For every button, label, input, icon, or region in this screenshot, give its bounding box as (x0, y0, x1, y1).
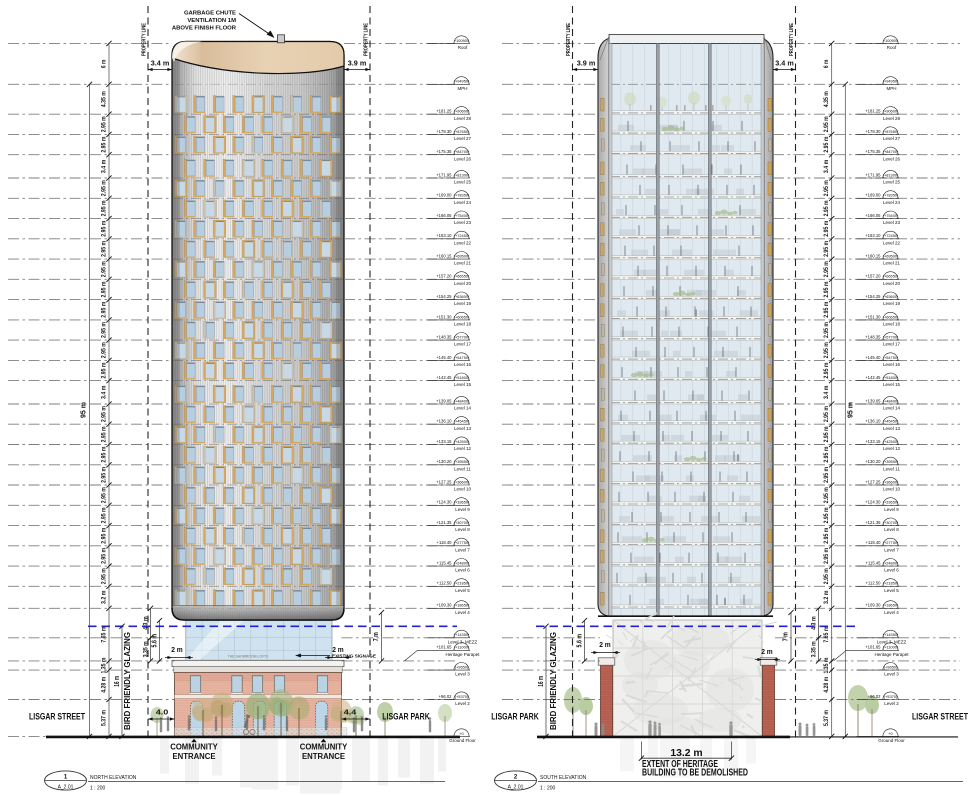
svg-text:2.95 m: 2.95 m (824, 241, 830, 257)
svg-text:+154.25: +154.25 (436, 294, 452, 299)
svg-text:2.95 m: 2.95 m (101, 221, 107, 237)
svg-text:(+27750): (+27750) (883, 540, 899, 545)
svg-text:(+14350): (+14350) (454, 632, 470, 637)
svg-text:(+66550): (+66550) (454, 274, 470, 279)
svg-text:Level 21: Level 21 (454, 261, 472, 266)
svg-text:+133.15: +133.15 (865, 439, 881, 444)
svg-text:13.2 m: 13.2 m (670, 748, 702, 759)
svg-text:Level 27: Level 27 (454, 136, 472, 141)
svg-text:2.95 m: 2.95 m (101, 200, 107, 216)
svg-text:Level 22: Level 22 (454, 240, 472, 245)
svg-text:+171.95: +171.95 (436, 172, 452, 177)
svg-text:Level 20: Level 20 (454, 281, 472, 286)
svg-text:(+72450): (+72450) (454, 233, 470, 238)
svg-text:2.95 m: 2.95 m (101, 137, 107, 153)
svg-text:Level 13: Level 13 (454, 426, 472, 431)
svg-text:4.35 m: 4.35 m (824, 91, 830, 107)
svg-text:+151.30: +151.30 (436, 314, 452, 319)
svg-text:Level 15: Level 15 (883, 382, 901, 387)
svg-text:+181.25: +181.25 (865, 109, 881, 114)
svg-text:7 m: 7 m (783, 632, 790, 641)
svg-text:3.4 m: 3.4 m (151, 59, 170, 68)
svg-text:LISGAR PARK: LISGAR PARK (491, 711, 539, 721)
svg-text:(+57700): (+57700) (454, 335, 470, 340)
svg-text:Level 5: Level 5 (455, 588, 470, 593)
svg-text:+124.30: +124.30 (436, 500, 452, 505)
svg-text:2.95 m: 2.95 m (824, 528, 830, 544)
svg-text:+127.25: +127.25 (865, 479, 881, 484)
svg-text:PROPERTY LINE: PROPERTY LINE (566, 23, 572, 56)
svg-text:+109.30: +109.30 (865, 603, 881, 608)
svg-text:A_2.01: A_2.01 (508, 785, 524, 791)
svg-text:+100900: +100900 (454, 38, 470, 43)
svg-text:Level 9: Level 9 (884, 507, 899, 512)
svg-text:Level 27: Level 27 (883, 136, 901, 141)
svg-text:Level 15: Level 15 (454, 382, 472, 387)
svg-text:2.95 m: 2.95 m (101, 447, 107, 463)
svg-text:Roof: Roof (887, 45, 897, 50)
svg-text:(+84700): (+84700) (883, 149, 899, 154)
svg-text:3.4 m: 3.4 m (824, 160, 830, 174)
svg-text:MPH: MPH (458, 86, 468, 91)
svg-text:(+51800): (+51800) (883, 375, 899, 380)
svg-text:3.4 m: 3.4 m (101, 160, 107, 174)
svg-text:+121.35: +121.35 (865, 520, 881, 525)
svg-text:(+54750): (+54750) (883, 355, 899, 360)
svg-text:Level 28: Level 28 (454, 116, 472, 121)
svg-text:(+57700): (+57700) (883, 335, 899, 340)
svg-text:2.95 m: 2.95 m (101, 568, 107, 584)
svg-text:+175.35: +175.35 (436, 149, 452, 154)
svg-text:(+94950): (+94950) (454, 79, 470, 84)
svg-text:BUILDING TO BE DEMOLISHED: BUILDING TO BE DEMOLISHED (642, 768, 748, 779)
svg-text:Level 9: Level 9 (455, 507, 470, 512)
svg-text:2 m: 2 m (171, 645, 183, 654)
svg-text:Level 18: Level 18 (454, 322, 472, 327)
svg-text:ABOVE FINISH FLOOR: ABOVE FINISH FLOOR (172, 26, 237, 32)
svg-text:Level 25: Level 25 (883, 180, 901, 185)
svg-text:+169.00: +169.00 (865, 193, 881, 198)
svg-text:(+18650): (+18650) (883, 603, 899, 608)
svg-text:LISGAR STREET: LISGAR STREET (912, 711, 968, 721)
svg-text:2.95 m: 2.95 m (101, 322, 107, 338)
svg-text:2.95 m: 2.95 m (824, 467, 830, 483)
svg-text:GARBAGE CHUTE: GARBAGE CHUTE (184, 11, 236, 17)
svg-text:(+42500): (+42500) (454, 439, 470, 444)
svg-text:Level 5: Level 5 (884, 588, 899, 593)
svg-text:(+39550): (+39550) (883, 459, 899, 464)
svg-text:VENTILATION 1M: VENTILATION 1M (187, 18, 236, 24)
svg-text:(+9650): (+9650) (884, 665, 898, 670)
svg-text:COMMUNITY: COMMUNITY (170, 743, 218, 752)
svg-text:2.95 m: 2.95 m (824, 261, 830, 277)
svg-text:2.95 m: 2.95 m (824, 548, 830, 564)
svg-text:2.95 m: 2.95 m (824, 406, 830, 422)
svg-text:(+9650): (+9650) (455, 665, 469, 670)
svg-text:(+87650): (+87650) (454, 129, 470, 134)
svg-text:6 m: 6 m (101, 60, 107, 69)
svg-text:LISGAR PARK: LISGAR PARK (382, 711, 430, 721)
svg-text:(+45450): (+45450) (454, 419, 470, 424)
svg-text:(+94950): (+94950) (883, 79, 899, 84)
svg-text:3.2 m: 3.2 m (101, 591, 107, 605)
svg-text:+181.25: +181.25 (436, 109, 452, 114)
svg-text:+96.02: +96.02 (439, 694, 453, 699)
svg-text:BIRD FRIENDLY GLAZING: BIRD FRIENDLY GLAZING (123, 632, 132, 730)
svg-text:Level 11: Level 11 (454, 466, 471, 471)
svg-text:2.95 m: 2.95 m (824, 363, 830, 379)
svg-text:(+75400): (+75400) (454, 213, 470, 218)
svg-text:(+78350): (+78350) (883, 193, 899, 198)
svg-text:Roof: Roof (458, 45, 468, 50)
svg-text:95 m: 95 m (845, 402, 854, 418)
svg-text:Level 3- MEZZ: Level 3- MEZZ (448, 639, 478, 644)
svg-text:ENTRANCE: ENTRANCE (173, 752, 216, 761)
svg-text:4.4: 4.4 (344, 708, 357, 717)
svg-text:Level 7: Level 7 (455, 547, 470, 552)
svg-text:2.95 m: 2.95 m (824, 507, 830, 523)
svg-text:+136.10: +136.10 (436, 419, 452, 424)
svg-text:2.95 m: 2.95 m (824, 487, 830, 503)
svg-text:MPH: MPH (887, 86, 897, 91)
svg-text:THE SHOWROOM LOFTS: THE SHOWROOM LOFTS (228, 655, 269, 659)
svg-text:COMMUNITY: COMMUNITY (300, 743, 348, 752)
svg-text:(+11000): (+11000) (883, 645, 899, 650)
svg-text:+130.20: +130.20 (865, 459, 881, 464)
svg-text:(+78350): (+78350) (454, 193, 470, 198)
svg-text:Ground Floor: Ground Floor (878, 738, 905, 743)
svg-text:+148.35: +148.35 (865, 335, 881, 340)
svg-text:NORTH ELEVATION: NORTH ELEVATION (90, 775, 137, 781)
svg-text:+115.45: +115.45 (866, 561, 882, 566)
svg-text:4.28 m: 4.28 m (101, 677, 107, 693)
svg-text:+178.30: +178.30 (436, 129, 452, 134)
svg-text:2.95 m: 2.95 m (824, 282, 830, 298)
svg-text:Level 12: Level 12 (883, 446, 901, 451)
svg-text:Level 2: Level 2 (884, 701, 899, 706)
svg-text:Level 18: Level 18 (883, 322, 901, 327)
svg-text:+118.40: +118.40 (437, 540, 453, 545)
svg-text:+124.30: +124.30 (865, 500, 881, 505)
svg-text:3.35 m: 3.35 m (142, 641, 149, 657)
svg-text:(+36600): (+36600) (454, 479, 470, 484)
svg-text:2.95 m: 2.95 m (824, 221, 830, 237)
svg-text:2.95 m: 2.95 m (824, 447, 830, 463)
svg-text:+175.35: +175.35 (865, 149, 881, 154)
svg-text:Level 14: Level 14 (883, 406, 901, 411)
svg-text:7 m: 7 m (373, 632, 380, 641)
svg-text:16 m: 16 m (538, 676, 545, 687)
svg-text:2.95 m: 2.95 m (101, 467, 107, 483)
svg-text:Level 19: Level 19 (883, 301, 901, 306)
svg-text:(+18650): (+18650) (454, 603, 470, 608)
svg-text:+145.40: +145.40 (865, 355, 881, 360)
svg-text:+171.95: +171.95 (865, 172, 881, 177)
svg-text:+121.35: +121.35 (436, 520, 452, 525)
svg-text:4.3 m: 4.3 m (810, 616, 817, 630)
svg-text:Level 24: Level 24 (883, 200, 901, 205)
svg-text:3.35 m: 3.35 m (810, 641, 817, 657)
svg-text:Level 2: Level 2 (455, 701, 470, 706)
svg-text:SOUTH ELEVATION: SOUTH ELEVATION (540, 775, 587, 781)
svg-text:1 : 200: 1 : 200 (90, 786, 106, 792)
svg-text:2.95 m: 2.95 m (101, 261, 107, 277)
svg-text:(+24800): (+24800) (883, 561, 899, 566)
svg-text:2.95 m: 2.95 m (101, 180, 107, 196)
svg-text:5.37 m: 5.37 m (824, 710, 830, 726)
svg-text:ENTRANCE: ENTRANCE (302, 752, 345, 761)
svg-text:EXISTING SIGNAGE: EXISTING SIGNAGE (332, 654, 376, 659)
svg-text:2.95 m: 2.95 m (101, 548, 107, 564)
svg-text:(+14350): (+14350) (883, 632, 899, 637)
svg-text:(+33650): (+33650) (883, 500, 899, 505)
svg-text:Level 24: Level 24 (454, 200, 472, 205)
svg-text:PROPERTY LINE: PROPERTY LINE (364, 23, 370, 56)
svg-text:(+24800): (+24800) (454, 561, 470, 566)
svg-text:PROPERTY LINE: PROPERTY LINE (142, 23, 148, 56)
svg-text:Level 16: Level 16 (883, 362, 901, 367)
svg-text:2.95 m: 2.95 m (101, 342, 107, 358)
svg-text:3.9 m: 3.9 m (577, 59, 596, 68)
svg-text:Level 3: Level 3 (455, 672, 470, 677)
svg-text:Level 17: Level 17 (883, 342, 901, 347)
svg-text:+157.20: +157.20 (436, 274, 452, 279)
svg-text:+151.30: +151.30 (865, 314, 881, 319)
svg-text:+100900: +100900 (883, 38, 899, 43)
svg-text:1.35 m: 1.35 m (101, 658, 107, 674)
svg-text:Level 16: Level 16 (454, 362, 472, 367)
svg-text:Heritage Parapet: Heritage Parapet (874, 652, 909, 657)
svg-text:Level 25: Level 25 (454, 180, 472, 185)
svg-text:(+48400): (+48400) (454, 398, 470, 403)
svg-text:+112.50: +112.50 (437, 581, 453, 586)
svg-text:(+72450): (+72450) (883, 233, 899, 238)
svg-text:Level 4: Level 4 (884, 610, 899, 615)
svg-text:(+39550): (+39550) (454, 459, 470, 464)
svg-text:2 m: 2 m (761, 647, 773, 656)
svg-text:(+60650): (+60650) (883, 314, 899, 319)
svg-text:+163.10: +163.10 (865, 233, 881, 238)
svg-text:(+21850): (+21850) (454, 581, 470, 586)
svg-text:+166.05: +166.05 (865, 213, 881, 218)
svg-text:(+5370): (+5370) (884, 694, 898, 699)
svg-text:Level 7: Level 7 (884, 547, 899, 552)
svg-text:(+27750): (+27750) (454, 540, 470, 545)
svg-text:Level 11: Level 11 (883, 466, 900, 471)
svg-text:(+11000): (+11000) (454, 645, 470, 650)
svg-text:+130.20: +130.20 (436, 459, 452, 464)
svg-text:3.2 m: 3.2 m (824, 591, 830, 605)
svg-text:4.35 m: 4.35 m (101, 91, 107, 107)
svg-text:+169.00: +169.00 (436, 193, 452, 198)
svg-text:(+90600): (+90600) (883, 109, 899, 114)
svg-text:+166.05: +166.05 (436, 213, 452, 218)
svg-text:(+51800): (+51800) (454, 375, 470, 380)
svg-text:+142.45: +142.45 (865, 375, 881, 380)
svg-text:+163.10: +163.10 (436, 233, 452, 238)
svg-text:(+69500): (+69500) (454, 254, 470, 259)
svg-text:(+42500): (+42500) (883, 439, 899, 444)
svg-text:2.95 m: 2.95 m (101, 116, 107, 132)
svg-text:+101.65: +101.65 (436, 645, 452, 650)
svg-text:+154.25: +154.25 (865, 294, 881, 299)
svg-text:(+81300): (+81300) (883, 172, 899, 177)
svg-text:(+81300): (+81300) (454, 172, 470, 177)
svg-text:2.95 m: 2.95 m (101, 241, 107, 257)
svg-text:+160.15: +160.15 (436, 254, 452, 259)
svg-text:(+30700): (+30700) (883, 520, 899, 525)
svg-text:2.95 m: 2.95 m (101, 282, 107, 298)
svg-text:4.0: 4.0 (156, 708, 169, 717)
svg-text:4.3 m: 4.3 m (142, 616, 149, 630)
svg-text:LISGAR STREET: LISGAR STREET (29, 711, 85, 721)
svg-text:3.4 m: 3.4 m (824, 386, 830, 400)
svg-text:2.95 m: 2.95 m (824, 137, 830, 153)
svg-text:+136.10: +136.10 (865, 419, 881, 424)
svg-text:2.95 m: 2.95 m (824, 568, 830, 584)
svg-text:2.95 m: 2.95 m (824, 116, 830, 132)
svg-text:1.35 m: 1.35 m (824, 658, 830, 674)
svg-text:+118.40: +118.40 (866, 540, 882, 545)
svg-text:2.95 m: 2.95 m (101, 487, 107, 503)
svg-text:(+84700): (+84700) (454, 149, 470, 154)
svg-text:(+45450): (+45450) (883, 419, 899, 424)
svg-text:Level 20: Level 20 (883, 281, 901, 286)
svg-text:2.95 m: 2.95 m (101, 426, 107, 442)
svg-text:7.65 m: 7.65 m (101, 627, 107, 643)
svg-text:5.6 m: 5.6 m (151, 634, 158, 648)
svg-text:3.4 m: 3.4 m (101, 386, 107, 400)
svg-text:+109.30: +109.30 (436, 603, 452, 608)
svg-text:Level 28: Level 28 (883, 116, 901, 121)
svg-text:2.95 m: 2.95 m (824, 322, 830, 338)
svg-text:(+66550): (+66550) (883, 274, 899, 279)
svg-text:+127.25: +127.25 (436, 479, 452, 484)
svg-text:2.95 m: 2.95 m (824, 302, 830, 318)
svg-text:Level 6: Level 6 (884, 568, 899, 573)
svg-text:Level 10: Level 10 (454, 487, 472, 492)
svg-text:Level 17: Level 17 (454, 342, 472, 347)
svg-text:Level 10: Level 10 (883, 487, 901, 492)
svg-text:4.28 m: 4.28 m (824, 677, 830, 693)
svg-text:Level 8: Level 8 (884, 527, 899, 532)
svg-text:Level 3: Level 3 (884, 672, 899, 677)
svg-text:2.95 m: 2.95 m (101, 528, 107, 544)
svg-text:2.95 m: 2.95 m (101, 363, 107, 379)
svg-text:+145.40: +145.40 (436, 355, 452, 360)
svg-text:(+54750): (+54750) (454, 355, 470, 360)
svg-text:+139.05: +139.05 (436, 398, 452, 403)
svg-text:Level 23: Level 23 (883, 220, 901, 225)
svg-text:Level 26: Level 26 (454, 156, 472, 161)
svg-text:+133.15: +133.15 (436, 439, 452, 444)
svg-text:3.4 m: 3.4 m (775, 59, 794, 68)
svg-text:+115.45: +115.45 (437, 561, 453, 566)
svg-text:Level 26: Level 26 (883, 156, 901, 161)
svg-text:Level 4: Level 4 (455, 610, 470, 615)
svg-text:95 m: 95 m (79, 402, 88, 418)
svg-text:(+69500): (+69500) (883, 254, 899, 259)
svg-text:+96.02: +96.02 (868, 694, 882, 699)
svg-text:7.65 m: 7.65 m (824, 627, 830, 643)
svg-text:+160.15: +160.15 (865, 254, 881, 259)
svg-text:(+63600): (+63600) (454, 294, 470, 299)
svg-text:2.95 m: 2.95 m (101, 507, 107, 523)
svg-text:2 m: 2 m (599, 640, 611, 649)
svg-text:BIRD FRIENDLY GLAZING: BIRD FRIENDLY GLAZING (549, 632, 558, 730)
svg-text:Level 6: Level 6 (455, 568, 470, 573)
svg-text:(+48400): (+48400) (883, 398, 899, 403)
svg-text:16 m: 16 m (114, 676, 121, 687)
svg-text:Level 19: Level 19 (454, 301, 472, 306)
svg-text:2.95 m: 2.95 m (824, 426, 830, 442)
svg-text:Level 13: Level 13 (883, 426, 901, 431)
svg-text:PROPERTY LINE: PROPERTY LINE (789, 23, 795, 56)
svg-text:Level 14: Level 14 (454, 406, 472, 411)
svg-text:2.95 m: 2.95 m (824, 200, 830, 216)
svg-text:2.95 m: 2.95 m (101, 302, 107, 318)
svg-text:Level 22: Level 22 (883, 240, 901, 245)
svg-text:Heritage Parapet: Heritage Parapet (445, 652, 480, 657)
svg-text:(+5370): (+5370) (455, 694, 469, 699)
svg-text:(+60650): (+60650) (454, 314, 470, 319)
svg-text:+139.05: +139.05 (865, 398, 881, 403)
svg-text:(+87650): (+87650) (883, 129, 899, 134)
svg-text:2.95 m: 2.95 m (101, 406, 107, 422)
svg-text:2.95 m: 2.95 m (824, 342, 830, 358)
svg-text:(+90600): (+90600) (454, 109, 470, 114)
svg-text:+142.45: +142.45 (436, 375, 452, 380)
svg-text:5.37 m: 5.37 m (101, 710, 107, 726)
svg-text:Ground Floor: Ground Floor (449, 738, 476, 743)
svg-text:(+21850): (+21850) (883, 581, 899, 586)
svg-text:Level 21: Level 21 (883, 261, 901, 266)
svg-text:(+33650): (+33650) (454, 500, 470, 505)
svg-text:+101.65: +101.65 (865, 645, 881, 650)
svg-text:(+36600): (+36600) (883, 479, 899, 484)
svg-text:Level 3- MEZZ: Level 3- MEZZ (877, 639, 907, 644)
svg-text:(+30700): (+30700) (454, 520, 470, 525)
svg-text:Level 23: Level 23 (454, 220, 472, 225)
svg-text:2.95 m: 2.95 m (824, 180, 830, 196)
svg-text:Level 12: Level 12 (454, 446, 472, 451)
svg-text:1 : 200: 1 : 200 (540, 786, 556, 792)
svg-text:(+75400): (+75400) (883, 213, 899, 218)
svg-text:+112.50: +112.50 (866, 581, 882, 586)
svg-text:Level 8: Level 8 (455, 527, 470, 532)
svg-text:+148.35: +148.35 (436, 335, 452, 340)
svg-text:+178.30: +178.30 (865, 129, 881, 134)
svg-text:5.6 m: 5.6 m (576, 634, 583, 648)
svg-text:A_2.01: A_2.01 (58, 785, 74, 791)
svg-text:6 m: 6 m (824, 60, 830, 69)
svg-text:(+63600): (+63600) (883, 294, 899, 299)
svg-text:+157.20: +157.20 (865, 274, 881, 279)
svg-text:3.9 m: 3.9 m (348, 59, 367, 68)
